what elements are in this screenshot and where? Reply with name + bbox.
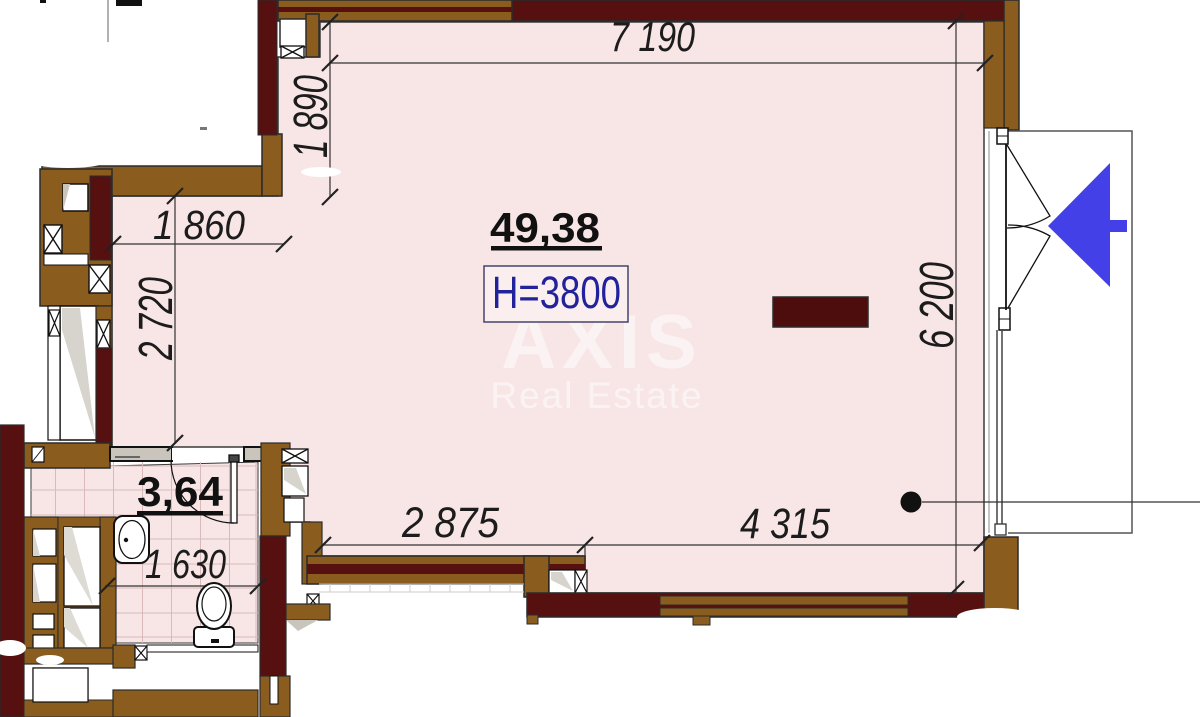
- svg-text:2 875: 2 875: [401, 499, 500, 547]
- svg-text:Real Estate: Real Estate: [490, 375, 703, 416]
- svg-text:1 630: 1 630: [145, 541, 226, 587]
- svg-text:7 190: 7 190: [610, 13, 696, 60]
- svg-text:2 720: 2 720: [130, 277, 183, 361]
- svg-text:H=3800: H=3800: [492, 267, 621, 318]
- svg-text:1 890: 1 890: [285, 75, 338, 158]
- svg-text:3,64: 3,64: [137, 468, 224, 515]
- svg-text:1 860: 1 860: [153, 202, 245, 248]
- svg-text:6 200: 6 200: [911, 262, 964, 349]
- svg-text:4 315: 4 315: [740, 500, 831, 548]
- svg-text:49,38: 49,38: [490, 204, 600, 251]
